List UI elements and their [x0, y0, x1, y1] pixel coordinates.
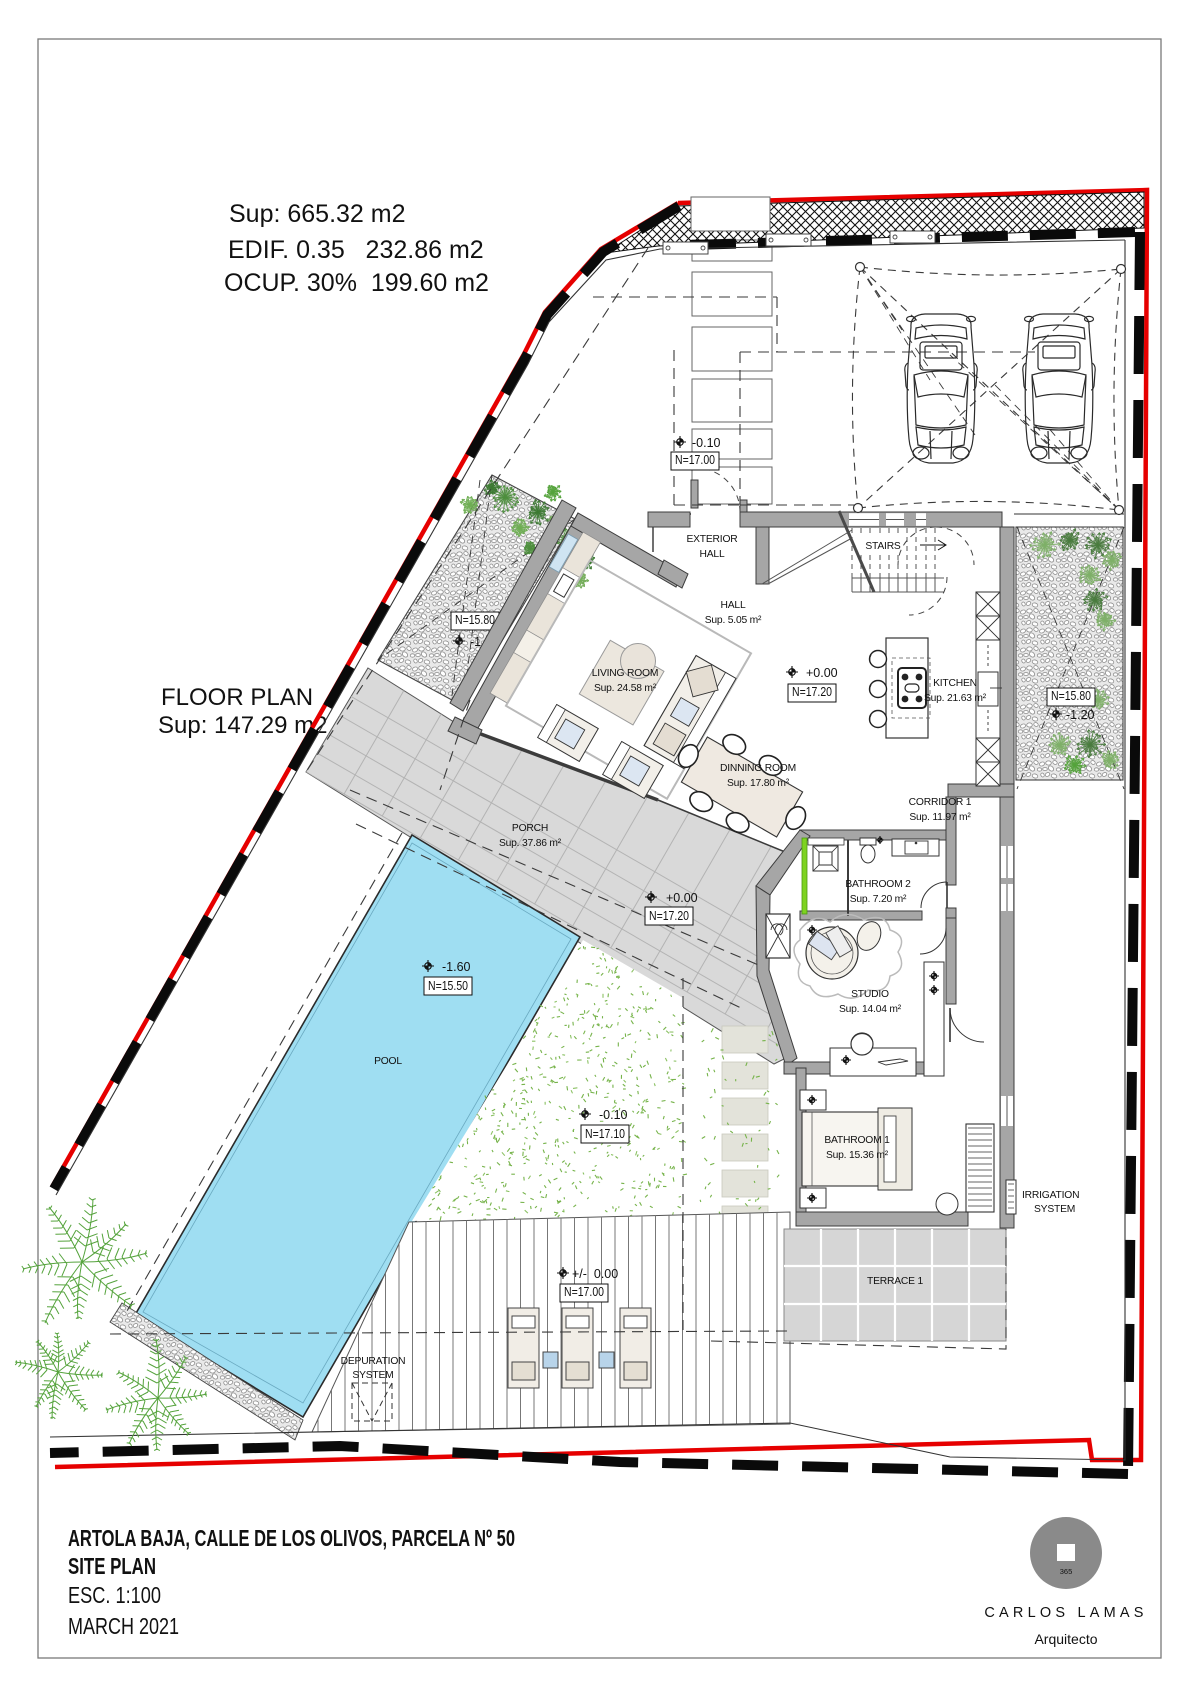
svg-text:Sup. 7.20 m²: Sup. 7.20 m² — [850, 894, 907, 905]
svg-text:Sup. 5.05 m²: Sup. 5.05 m² — [705, 615, 762, 626]
svg-text:Sup: 665.32 m2: Sup: 665.32 m2 — [229, 200, 406, 228]
svg-text:+0.00: +0.00 — [806, 666, 838, 680]
svg-text:N=17.00: N=17.00 — [564, 1285, 604, 1299]
svg-text:N=15.50: N=15.50 — [428, 979, 468, 993]
svg-text:-0.10: -0.10 — [599, 1108, 628, 1122]
svg-text:N=17.20: N=17.20 — [792, 685, 832, 699]
svg-text:MARCH 2021: MARCH 2021 — [68, 1613, 179, 1639]
svg-text:Sup. 15.36 m²: Sup. 15.36 m² — [826, 1150, 889, 1161]
svg-text:ESC. 1:100: ESC. 1:100 — [68, 1582, 161, 1608]
svg-text:LIVING ROOM: LIVING ROOM — [592, 668, 658, 679]
svg-text:EXTERIOR: EXTERIOR — [686, 534, 737, 545]
svg-text:CARLOS LAMAS: CARLOS LAMAS — [984, 1605, 1147, 1621]
svg-text:BATHROOM 2: BATHROOM 2 — [845, 879, 911, 890]
svg-text:N=17.20: N=17.20 — [649, 909, 689, 923]
svg-text:IRRIGATION: IRRIGATION — [1022, 1190, 1079, 1201]
svg-text:OCUP. 30% 199.60 m2: OCUP. 30% 199.60 m2 — [224, 269, 489, 297]
svg-text:DEPURATION: DEPURATION — [341, 1356, 406, 1367]
svg-text:Sup. 17.80 m²: Sup. 17.80 m² — [727, 778, 790, 789]
svg-text:PORCH: PORCH — [512, 823, 548, 834]
svg-text:HALL: HALL — [721, 600, 746, 611]
svg-text:Sup. 11.97 m²: Sup. 11.97 m² — [909, 812, 971, 823]
svg-text:Sup. 37.86 m²: Sup. 37.86 m² — [499, 838, 562, 849]
svg-text:KITCHEN: KITCHEN — [933, 678, 977, 689]
svg-text:-1.20: -1.20 — [1066, 708, 1095, 722]
svg-text:Sup. 14.04 m²: Sup. 14.04 m² — [839, 1004, 902, 1015]
svg-text:DINNING ROOM: DINNING ROOM — [720, 763, 796, 774]
svg-text:Arquitecto: Arquitecto — [1034, 1631, 1097, 1647]
svg-text:SITE PLAN: SITE PLAN — [68, 1553, 156, 1579]
svg-text:ARTOLA BAJA, CALLE DE LOS OLIV: ARTOLA BAJA, CALLE DE LOS OLIVOS, PARCEL… — [68, 1525, 515, 1551]
svg-text:HALL: HALL — [700, 549, 725, 560]
svg-text:SYSTEM: SYSTEM — [352, 1370, 393, 1381]
svg-text:N=17.10: N=17.10 — [585, 1127, 625, 1141]
svg-text:FLOOR PLAN: FLOOR PLAN — [161, 684, 313, 711]
svg-text:-1.60: -1.60 — [442, 960, 471, 974]
svg-text:365: 365 — [1060, 1567, 1073, 1576]
svg-text:STAIRS: STAIRS — [865, 541, 901, 552]
svg-text:N=17.00: N=17.00 — [675, 453, 715, 467]
svg-text:BATHROOM 1: BATHROOM 1 — [824, 1135, 890, 1146]
svg-text:POOL: POOL — [374, 1056, 402, 1067]
svg-text:+/- 0.00: +/- 0.00 — [572, 1267, 618, 1281]
svg-text:-0.10: -0.10 — [692, 436, 721, 450]
svg-text:TERRACE 1: TERRACE 1 — [867, 1276, 923, 1287]
svg-text:Sup. 24.58 m²: Sup. 24.58 m² — [594, 683, 657, 694]
svg-text:+0.00: +0.00 — [666, 891, 698, 905]
svg-text:N=15.80: N=15.80 — [1051, 689, 1091, 703]
svg-text:N=15.80: N=15.80 — [455, 613, 495, 627]
svg-text:STUDIO: STUDIO — [851, 989, 889, 1000]
svg-text:Sup: 147.29 m2: Sup: 147.29 m2 — [158, 712, 327, 739]
svg-text:CORRIDOR 1: CORRIDOR 1 — [909, 797, 972, 808]
svg-text:Sup. 21.63 m²: Sup. 21.63 m² — [924, 693, 987, 704]
svg-text:EDIF. 0.35 232.86 m2: EDIF. 0.35 232.86 m2 — [228, 236, 484, 264]
svg-text:SYSTEM: SYSTEM — [1034, 1204, 1075, 1215]
